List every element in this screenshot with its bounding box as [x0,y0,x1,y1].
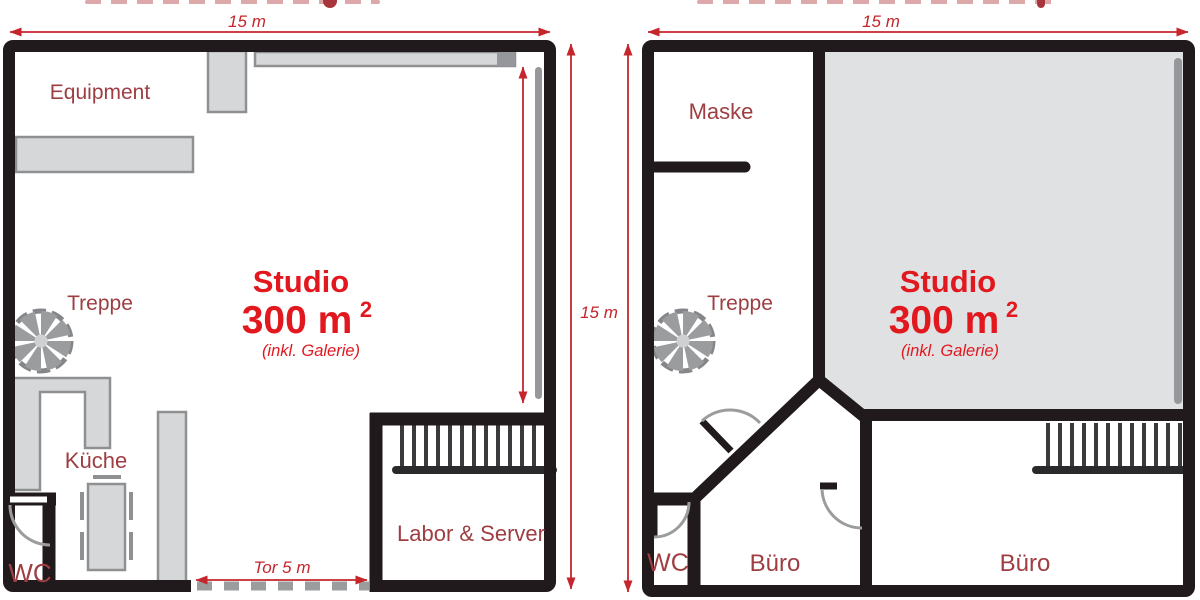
wc-door-swing-arc [654,502,689,537]
upper-floor-plan: 15 m Maske Treppe WC Büro Büro Studio 30… [628,12,1195,597]
studio-caption: Studio 300 m 2 (inkl. Galerie) [242,264,372,360]
kitchen-table-and-chairs [82,477,131,570]
width-dimension-label: 15 m [228,12,266,31]
studio-area-superscript: 2 [1006,297,1018,322]
studio-area: 300 m [242,299,353,342]
spiral-staircase-icon [11,311,71,371]
width-dimension-label: 15 m [862,12,900,31]
rail-end-cap [497,51,515,66]
table [88,484,125,570]
doors [654,410,862,537]
room-label-treppe: Treppe [707,292,773,315]
studio-note: (inkl. Galerie) [901,342,999,360]
studio-gallery-area [819,46,1189,415]
studio-area-superscript: 2 [360,297,372,322]
floor-plans-drawing: 15 m 15 m Tor 5 m Equipment Treppe Küche… [0,0,1200,600]
equipment-shelves [16,51,515,172]
height-dimension-label: 15 m [580,303,618,322]
gate-dimension-label: Tor 5 m [253,558,310,577]
kitchen-counter [10,378,110,490]
floor-plan-figure: 15 m 15 m Tor 5 m Equipment Treppe Küche… [0,0,1200,600]
curtain-rail [535,67,542,399]
room-label-wc: WC [647,549,689,577]
ground-floor-plan: 15 m 15 m Tor 5 m Equipment Treppe Küche… [3,12,618,599]
room-label-kueche: Küche [65,448,127,473]
room-label-labor-server: Labor & Server [397,521,545,546]
spiral-staircase-icon [653,311,713,371]
room-label-wc: WC [8,558,51,588]
partition-panel [158,412,186,590]
room-label-treppe: Treppe [67,292,133,315]
room-label-maske: Maske [689,99,754,124]
curtain-rail [1174,58,1182,404]
studio-name: Studio [253,264,349,299]
studio-area: 300 m [889,299,1000,342]
wc-door-opening [10,497,47,503]
office-door-swing-arc [822,489,862,528]
studio-name: Studio [900,264,996,299]
room-label-equipment: Equipment [50,81,151,104]
studio-note: (inkl. Galerie) [262,342,360,360]
staircase [1036,423,1190,470]
room-label-buero-1: Büro [750,550,801,577]
diagonal-door-leaf [702,421,731,451]
diagonal-door-swing-arc [702,410,760,423]
staircase [396,425,553,470]
room-label-buero-2: Büro [1000,550,1051,577]
